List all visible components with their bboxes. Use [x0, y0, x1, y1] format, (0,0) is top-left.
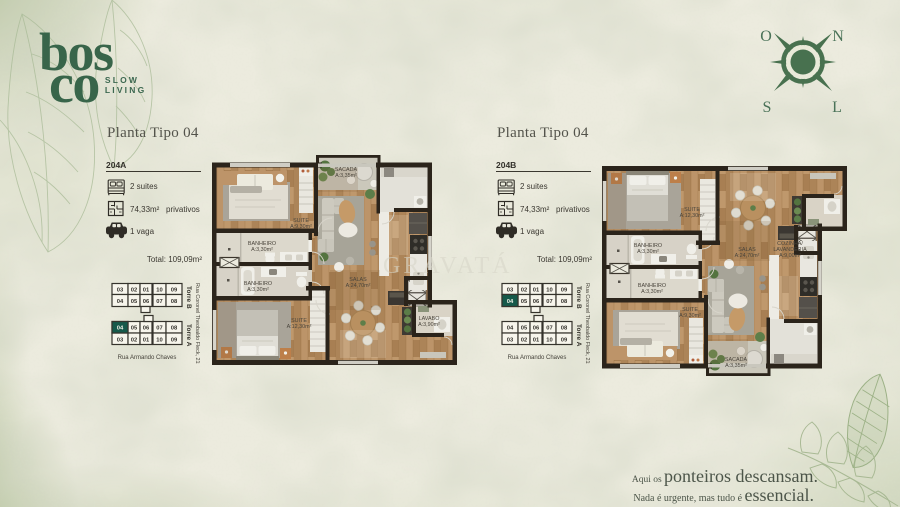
- svg-text:2 suites: 2 suites: [130, 182, 158, 191]
- svg-text:03: 03: [117, 287, 124, 293]
- svg-text:A:12,30m²: A:12,30m²: [680, 213, 705, 219]
- svg-text:204A: 204A: [106, 160, 126, 170]
- svg-text:A:12,30m²: A:12,30m²: [287, 324, 312, 330]
- svg-text:Total: 109,09m²: Total: 109,09m²: [147, 255, 202, 264]
- svg-text:Torre B: Torre B: [185, 286, 192, 309]
- svg-text:A:24,70m²: A:24,70m²: [346, 283, 371, 289]
- svg-text:07: 07: [156, 299, 162, 305]
- svg-text:A:9,30m²: A:9,30m²: [290, 224, 312, 230]
- svg-text:Rua Armando Chaves: Rua Armando Chaves: [118, 355, 177, 361]
- svg-text:10: 10: [156, 287, 162, 293]
- svg-text:74,33m² privativos: 74,33m² privativos: [130, 205, 200, 214]
- svg-text:09: 09: [171, 337, 178, 343]
- svg-text:A:9,30m²: A:9,30m²: [679, 313, 701, 319]
- svg-text:A:3,35m²: A:3,35m²: [725, 363, 747, 369]
- svg-text:O: O: [760, 28, 772, 45]
- svg-text:06: 06: [143, 326, 150, 332]
- svg-text:A:3,30m²: A:3,30m²: [247, 287, 269, 293]
- svg-text:A:3,30m²: A:3,30m²: [637, 249, 659, 255]
- svg-text:Rua Coronel Theobaldo Fleck, 2: Rua Coronel Theobaldo Fleck, 215: [194, 283, 200, 364]
- svg-text:10: 10: [156, 337, 162, 343]
- svg-text:A:3,30m²: A:3,30m²: [641, 289, 663, 295]
- svg-text:04: 04: [117, 326, 124, 332]
- svg-text:02: 02: [131, 337, 137, 343]
- svg-text:05: 05: [131, 326, 138, 332]
- svg-text:204B: 204B: [496, 160, 516, 170]
- svg-text:05: 05: [131, 299, 138, 305]
- svg-text:A:3,35m²: A:3,35m²: [335, 173, 357, 179]
- svg-text:L: L: [832, 99, 842, 116]
- svg-text:A:3,90m²: A:3,90m²: [418, 322, 440, 328]
- svg-text:02: 02: [131, 287, 137, 293]
- svg-text:N: N: [832, 28, 844, 45]
- svg-text:06: 06: [143, 299, 150, 305]
- svg-text:01: 01: [143, 337, 150, 343]
- svg-text:A:3,30m²: A:3,30m²: [251, 247, 273, 253]
- svg-text:03: 03: [117, 337, 124, 343]
- svg-text:S: S: [763, 99, 772, 116]
- svg-text:A:24,70m²: A:24,70m²: [735, 253, 760, 259]
- svg-text:Torre A: Torre A: [185, 324, 192, 347]
- svg-text:1 vaga: 1 vaga: [130, 227, 155, 236]
- svg-text:08: 08: [171, 326, 178, 332]
- svg-text:A:9,00m²: A:9,00m²: [779, 253, 801, 259]
- svg-text:09: 09: [171, 287, 178, 293]
- svg-text:04: 04: [117, 299, 124, 305]
- svg-text:04: 04: [507, 299, 514, 305]
- svg-text:07: 07: [156, 326, 162, 332]
- svg-text:08: 08: [171, 299, 178, 305]
- svg-text:01: 01: [143, 287, 150, 293]
